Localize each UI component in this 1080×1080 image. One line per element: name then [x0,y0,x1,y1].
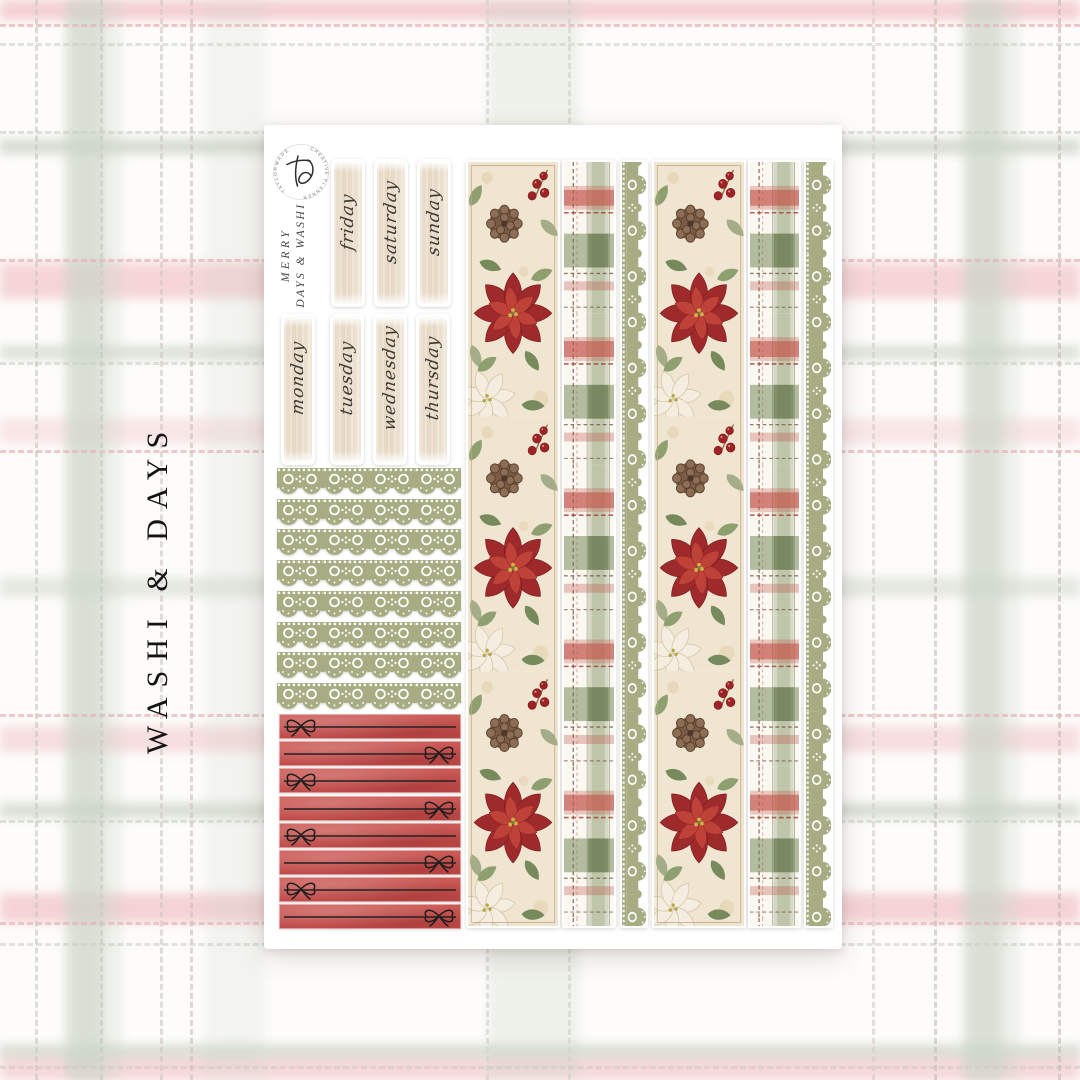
lace-trim-graphic [277,468,461,496]
lace-trim-graphic [277,652,461,680]
lace-border-sticker [277,622,461,650]
red-line-sticker [279,796,461,821]
lace-trim-graphic [277,499,461,527]
brush-stroke: monday [284,317,312,462]
brush-stroke: saturday [377,162,405,304]
lace-border-sticker [277,683,461,711]
bow-icon [425,748,452,764]
lace-border-sticker [277,591,461,619]
brand-logo-stamp-icon: TAYLORMADE CREATIVE PLANNER [272,143,330,201]
lace-border-sticker [277,529,461,557]
brush-stroke: sunday [420,162,448,304]
day-sticker-friday: friday [331,159,365,307]
washi-strip-green-lace [620,160,648,928]
brand-line-1: MERRY [279,194,294,316]
lace-border-sticker [277,652,461,680]
brand-title: MERRY DAYS & WASHI [279,194,315,316]
day-label: monday [288,340,308,417]
bow-line-graphic [279,877,461,902]
bow-icon [425,802,452,818]
washi-strip-christmas-plaid [562,160,616,928]
bow-icon [287,720,314,736]
washi-strip-green-lace [804,160,833,928]
red-line-sticker [279,823,461,848]
red-line-sticker [279,768,461,793]
day-sticker-wednesday: wednesday [373,314,407,465]
bow-icon [287,884,314,900]
day-label: friday [338,192,358,251]
washi-strip-christmas-plaid-graphic [564,162,614,926]
day-label: thursday [423,334,443,421]
washi-strip-green-lace-graphic [622,162,646,926]
bow-line-graphic [279,904,461,929]
lace-trim-graphic [277,683,461,711]
lace-border-sticker [277,499,461,527]
red-line-sticker [279,877,461,902]
day-sticker-monday: monday [281,314,315,465]
day-label: wednesday [380,324,400,432]
brush-stroke: thursday [419,317,447,462]
bow-line-graphic [279,823,461,848]
bow-line-graphic [279,796,461,821]
side-title: WASHI & DAYS [141,422,175,754]
day-sticker-sunday: sunday [417,159,451,307]
washi-strip-poinsettia-floral [652,160,746,928]
washi-strip-christmas-plaid-graphic [750,162,799,926]
red-line-sticker [279,904,461,929]
bow-line-graphic [279,768,461,793]
stitch-line-vertical [934,0,937,1080]
bow-line-graphic [279,741,461,766]
brush-stroke: wednesday [376,317,404,462]
stitch-line-vertical [100,0,103,1080]
bow-icon [287,829,314,845]
red-line-sticker [279,850,461,875]
stitch-line-vertical [190,0,193,1080]
product-image: WASHI & DAYS TAYLORMADE CREATIVE PLANNER [0,0,1080,1080]
red-line-sticker [279,741,461,766]
washi-strip-green-lace-graphic [806,162,831,926]
brush-stroke: tuesday [333,317,361,462]
plaid-sage-column [68,0,104,1080]
washi-strip-christmas-plaid [748,160,801,928]
bow-icon [287,775,314,791]
lace-trim-graphic [277,591,461,619]
plaid-sage-column [966,0,1002,1080]
lace-border-sticker [277,560,461,588]
washi-strip-poinsettia-floral-graphic [654,162,744,926]
lace-border-sticker [277,468,461,496]
stitch-line-vertical [1058,0,1061,1080]
day-sticker-saturday: saturday [374,159,408,307]
red-line-sticker [279,714,461,739]
brand-line-2: DAYS & WASHI [294,194,309,316]
day-label: saturday [381,179,401,265]
day-label: sunday [424,187,444,257]
washi-strip-poinsettia-floral-graphic [468,162,558,926]
day-sticker-tuesday: tuesday [330,314,364,465]
washi-strip-poinsettia-floral [466,160,560,928]
bow-line-graphic [279,714,461,739]
stitch-line-vertical [872,0,875,1080]
day-label: tuesday [337,339,357,416]
plaid-sage-column [205,0,265,1080]
lace-trim-graphic [277,560,461,588]
lace-trim-graphic [277,622,461,650]
bow-line-graphic [279,850,461,875]
stitch-line-vertical [35,0,38,1080]
day-sticker-thursday: thursday [416,314,450,465]
bow-icon [425,911,452,927]
bow-icon [425,856,452,872]
lace-trim-graphic [277,529,461,557]
brush-stroke: friday [334,162,362,304]
sticker-sheet: TAYLORMADE CREATIVE PLANNER MERRY DAYS &… [264,125,842,949]
